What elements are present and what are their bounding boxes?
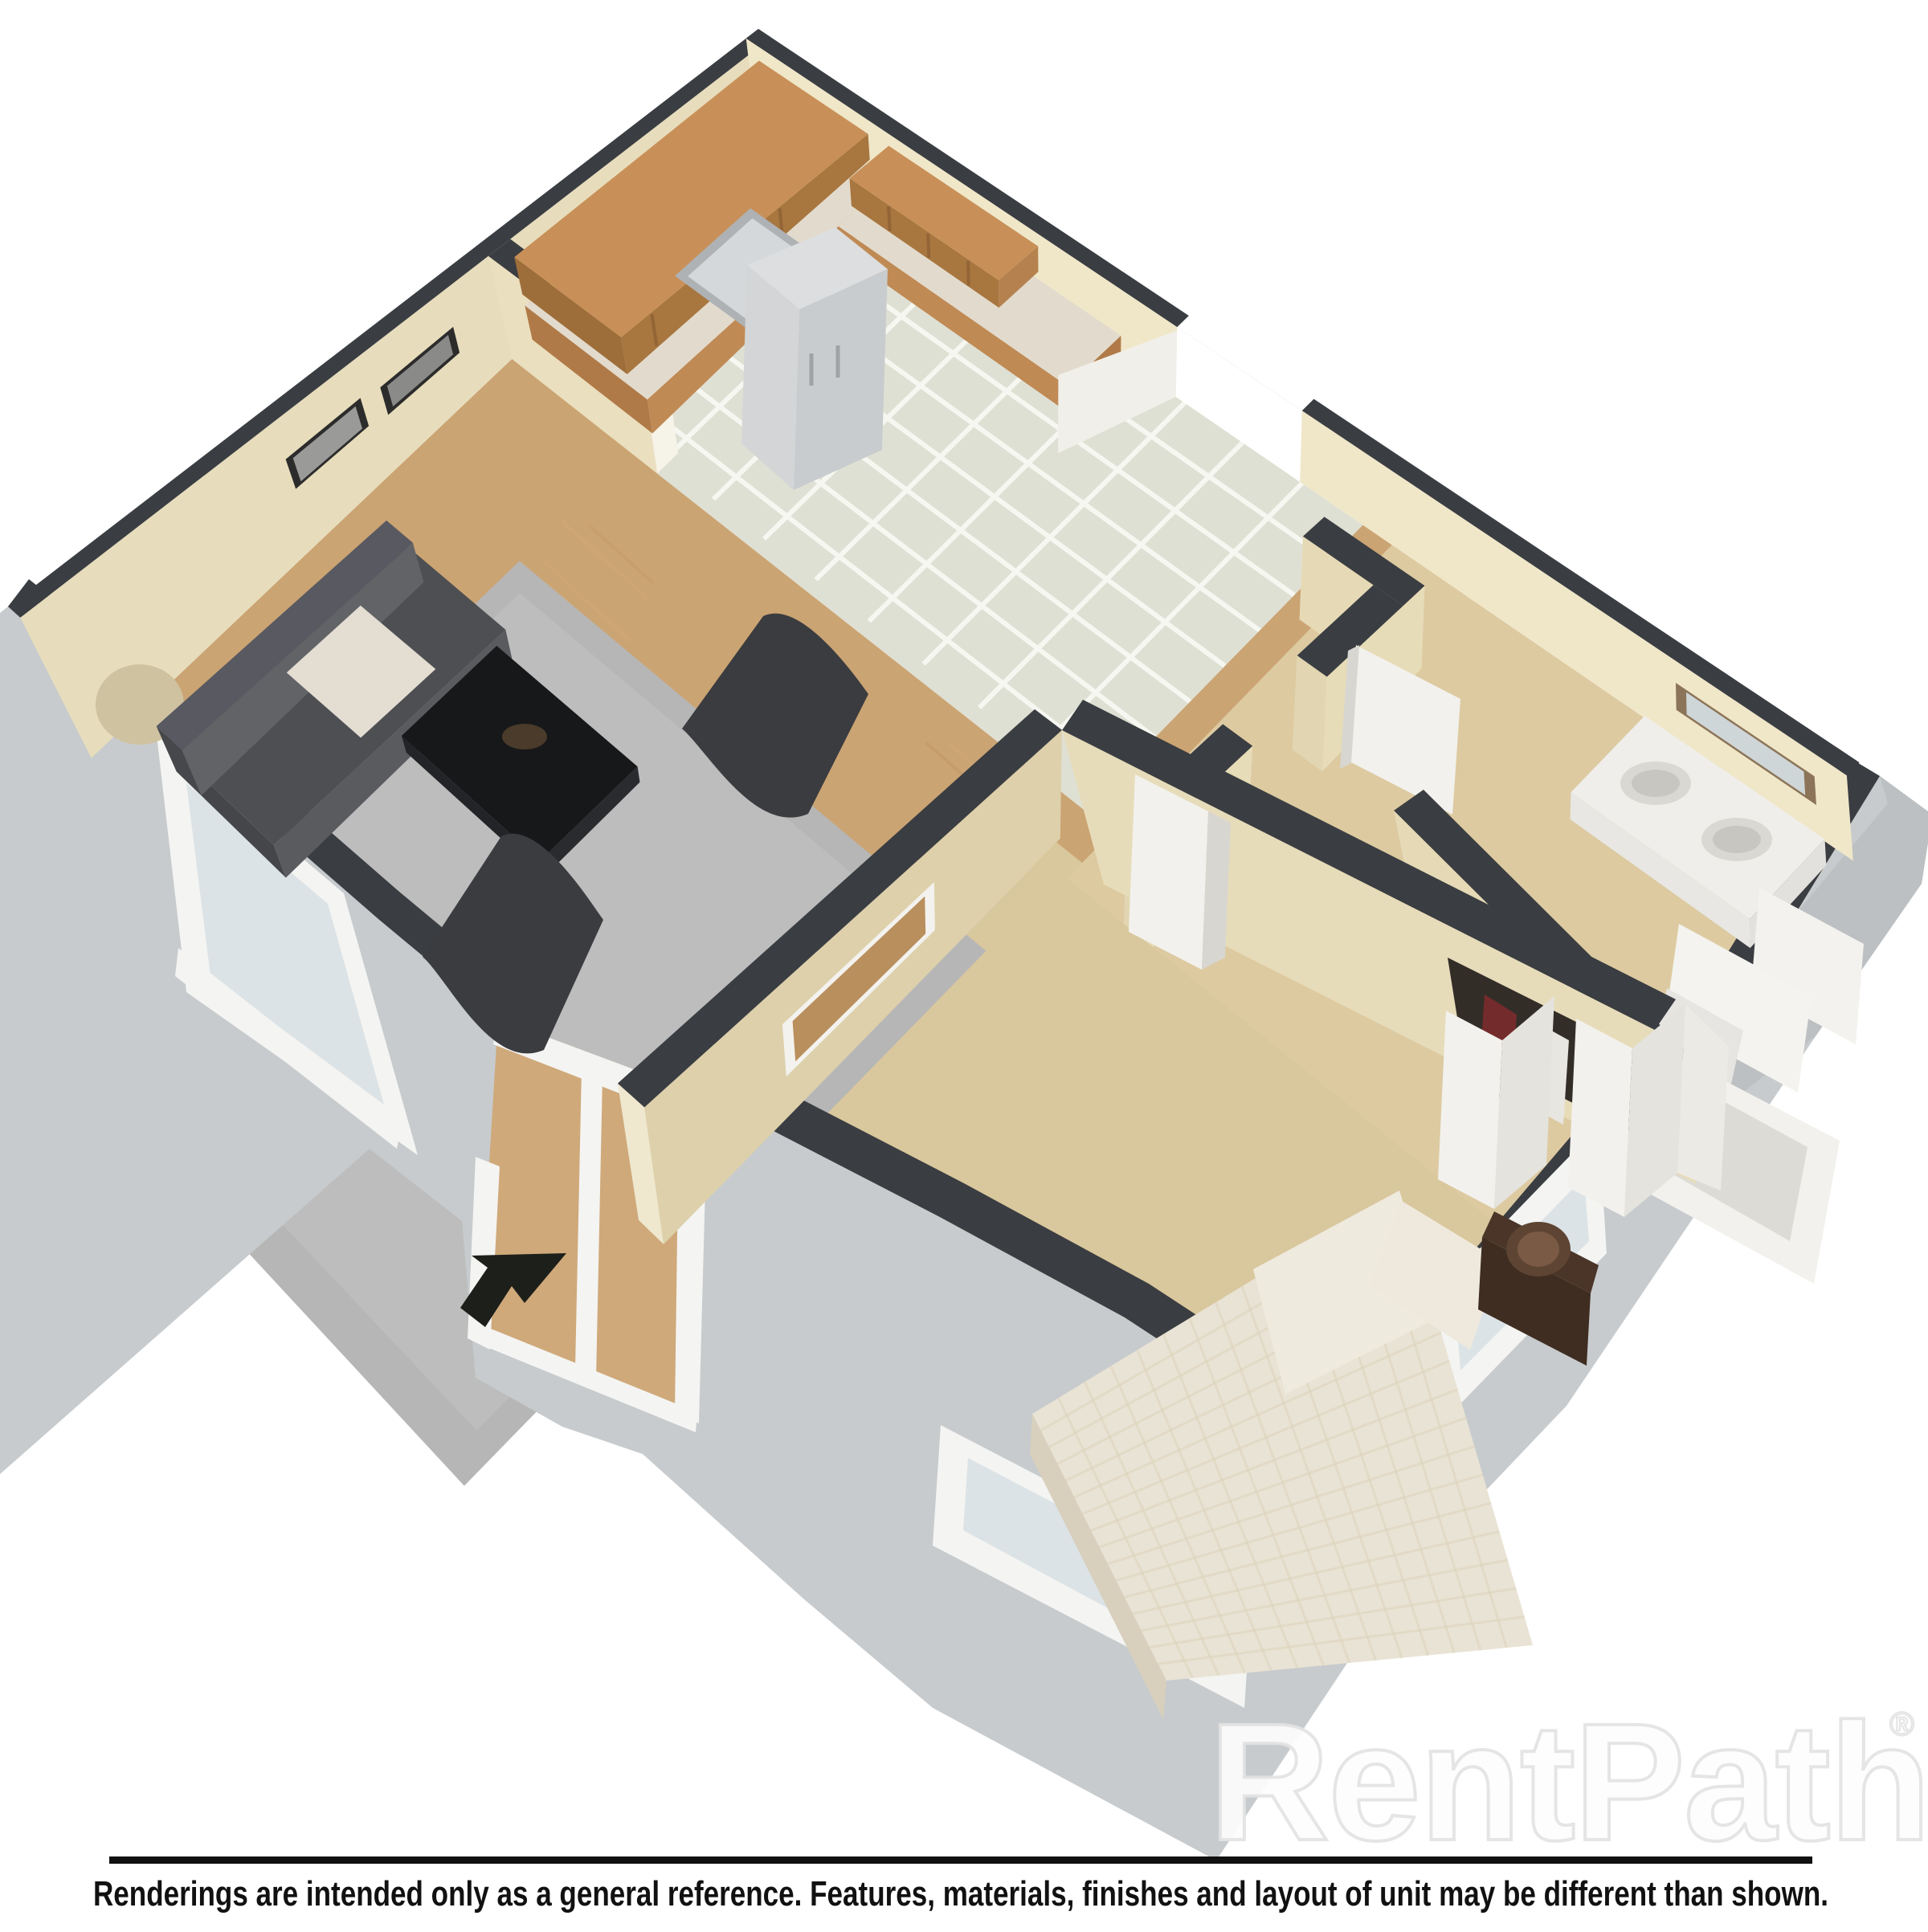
svg-text:Renderings are intended only a: Renderings are intended only as a genera… bbox=[93, 1874, 1828, 1914]
svg-text:RentPath: RentPath bbox=[1209, 1689, 1928, 1876]
svg-text:®: ® bbox=[1889, 1705, 1914, 1742]
